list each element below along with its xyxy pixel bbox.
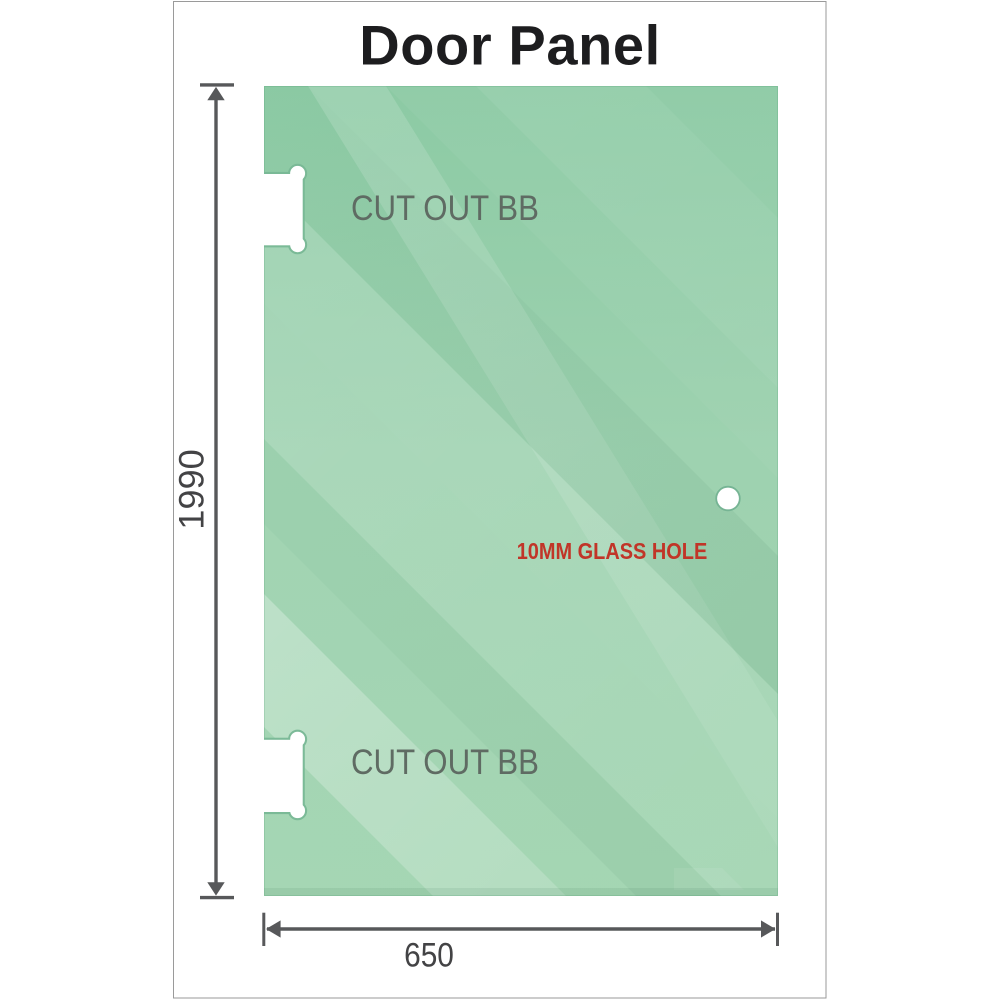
svg-text:CUT OUT BB: CUT OUT BB — [351, 743, 539, 782]
svg-text:Door Panel: Door Panel — [359, 14, 661, 77]
svg-text:10MM GLASS HOLE: 10MM GLASS HOLE — [517, 538, 708, 565]
svg-text:650: 650 — [404, 936, 454, 974]
svg-text:CUT OUT BB: CUT OUT BB — [351, 189, 539, 228]
svg-text:1990: 1990 — [172, 449, 211, 530]
